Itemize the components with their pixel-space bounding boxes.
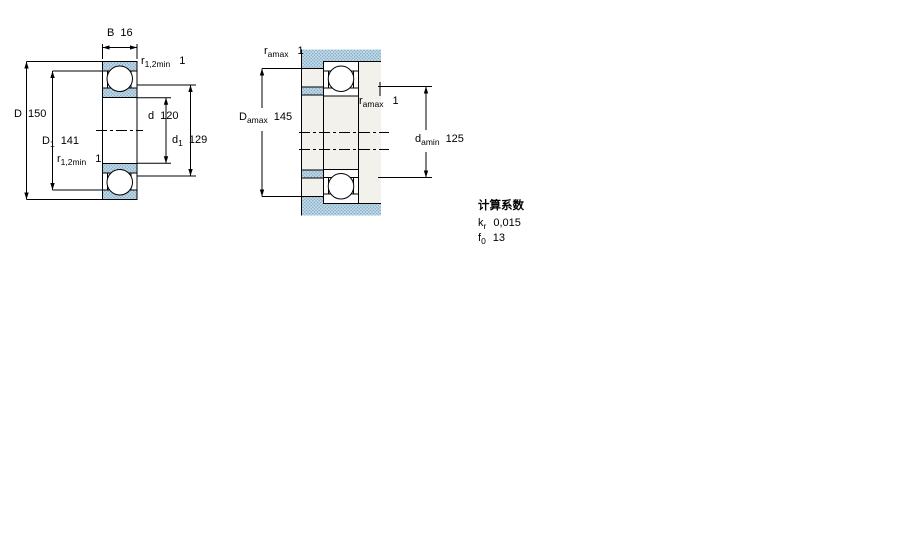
label-shoulder-D1: D1141 — [42, 135, 79, 149]
dim-D1 — [50, 71, 102, 190]
dim-symbol: B — [107, 27, 114, 39]
dim-value: 1 — [297, 45, 303, 57]
dim-subscript: amax — [268, 49, 289, 59]
dim-value: 129 — [189, 134, 207, 146]
dim-subscript: 1 — [178, 138, 183, 148]
dim-D — [24, 62, 102, 200]
factor-subscript: 0 — [481, 236, 486, 246]
dim-subscript: amax — [247, 115, 268, 125]
label-ra-mid: ramax1 — [359, 95, 399, 109]
dim-value: 1 — [179, 55, 185, 67]
label-ra-top: ramax1 — [264, 45, 304, 59]
label-shaft-da: damin125 — [415, 133, 464, 147]
label-r12-top: r1,2min1 — [141, 55, 185, 69]
dim-Da — [260, 69, 302, 197]
shoulder-bottom — [302, 170, 324, 178]
dim-value: 1 — [95, 153, 101, 165]
label-shoulder-d1: d1129 — [172, 134, 207, 148]
dim-value: 125 — [446, 133, 464, 145]
dim-value: 145 — [274, 111, 292, 123]
label-housing-Da: Damax145 — [239, 111, 292, 125]
ball-bottom — [107, 170, 133, 196]
dim-subscript: 1,2min — [145, 59, 171, 69]
label-outer-diameter-D: D150 — [14, 108, 46, 122]
dim-subscript: amax — [363, 99, 384, 109]
dim-value: 150 — [28, 108, 46, 120]
label-r12-bottom: r1,2min1 — [57, 153, 101, 167]
mounted-bearing-top — [324, 62, 359, 97]
dim-value: 1 — [392, 95, 398, 107]
dim-subscript: amin — [421, 137, 439, 147]
dim-symbol: D — [239, 111, 247, 123]
dim-subscript: 1 — [50, 139, 55, 149]
dim-subscript: 1,2min — [61, 157, 87, 167]
factor-row-kr: kr0,015 — [478, 217, 521, 231]
ball-bottom — [328, 174, 354, 200]
bearing-drawing-page: B16 r1,2min1 D150 d120 D1141 d1129 r1,2m… — [0, 0, 900, 560]
calculation-factors-title: 计算系数 — [478, 197, 524, 213]
factor-subscript: r — [484, 221, 487, 231]
label-width-B: B16 — [107, 27, 133, 41]
shoulder-top — [302, 87, 324, 95]
factor-value: 0,015 — [493, 217, 521, 229]
dim-symbol: d — [148, 110, 154, 122]
ball-top — [107, 66, 133, 92]
dim-value: 141 — [61, 135, 79, 147]
factor-value: 13 — [493, 232, 505, 244]
dim-value: 16 — [120, 27, 132, 39]
mounted-bearing-bottom — [324, 170, 359, 204]
drawing-linework — [0, 0, 900, 560]
label-bore-diameter-d: d120 — [148, 110, 178, 124]
right-mounting-section — [260, 50, 432, 216]
ball-top — [328, 66, 354, 92]
dim-B — [103, 44, 138, 59]
dim-symbol: D — [14, 108, 22, 120]
factor-row-f0: f013 — [478, 232, 505, 246]
dim-value: 120 — [160, 110, 178, 122]
dim-symbol: D — [42, 135, 50, 147]
